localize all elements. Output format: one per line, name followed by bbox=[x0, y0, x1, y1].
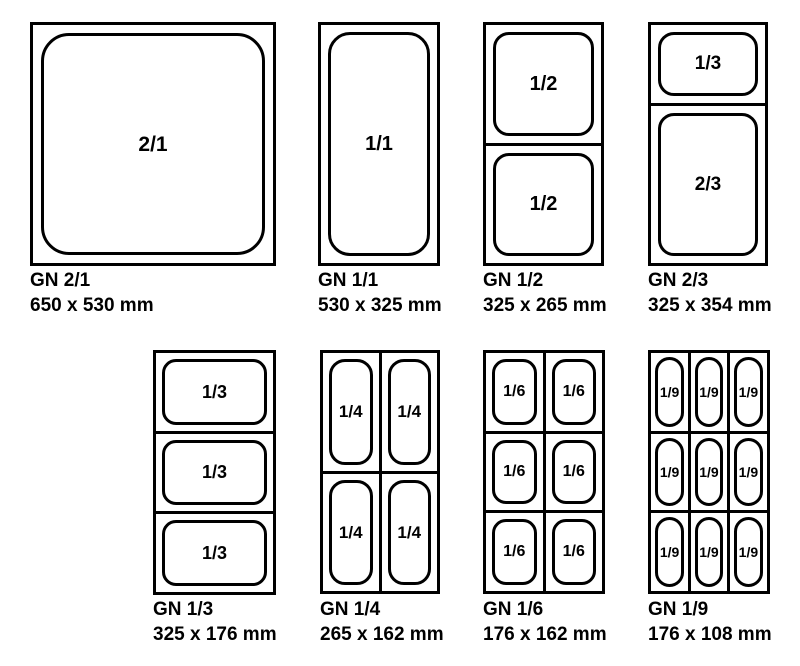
compartment-divider-vertical bbox=[543, 353, 546, 591]
pan-gn-1-4-compartment: 1/4 bbox=[388, 480, 432, 586]
pan-gn-1-3-caption-name: GN 1/3 bbox=[153, 600, 213, 620]
pan-gn-1-1-compartment: 1/1 bbox=[328, 32, 430, 256]
pan-gn-1-6-compartment: 1/6 bbox=[492, 440, 537, 504]
pan-gn-1-9-compartment: 1/9 bbox=[695, 357, 723, 427]
compartment-divider-horizontal bbox=[651, 510, 767, 513]
pan-gn-2-3-outline: 1/32/3 bbox=[648, 22, 768, 266]
compartment-divider-vertical bbox=[727, 353, 730, 591]
compartment-label: 1/2 bbox=[530, 74, 558, 94]
pan-gn-1-9-compartment: 1/9 bbox=[695, 438, 723, 506]
pan-gn-1-4-outline: 1/41/41/41/4 bbox=[320, 350, 440, 594]
compartment-label: 1/9 bbox=[699, 465, 718, 479]
compartment-label: 1/4 bbox=[397, 403, 421, 420]
compartment-label: 1/4 bbox=[339, 524, 363, 541]
pan-gn-1-3-compartment: 1/3 bbox=[162, 440, 267, 505]
pan-gn-1-2-caption-dimensions: 325 x 265 mm bbox=[483, 296, 607, 316]
compartment-label: 1/4 bbox=[339, 403, 363, 420]
compartment-divider-horizontal bbox=[651, 103, 765, 106]
pan-gn-1-4-compartment: 1/4 bbox=[388, 359, 432, 465]
pan-gn-2-3-caption-name: GN 2/3 bbox=[648, 271, 708, 291]
compartment-label: 1/6 bbox=[563, 544, 585, 560]
compartment-label: 1/9 bbox=[739, 465, 758, 479]
pan-gn-1-2-compartment: 1/2 bbox=[493, 32, 594, 136]
compartment-label: 1/6 bbox=[503, 544, 525, 560]
pan-gn-1-3-compartment: 1/3 bbox=[162, 359, 267, 425]
compartment-label: 1/9 bbox=[699, 545, 718, 559]
compartment-label: 1/3 bbox=[202, 463, 227, 481]
pan-gn-1-6-compartment: 1/6 bbox=[552, 359, 597, 425]
compartment-label: 1/9 bbox=[739, 545, 758, 559]
pan-gn-1-1-caption-dimensions: 530 x 325 mm bbox=[318, 296, 442, 316]
pan-gn-2-3-compartment: 2/3 bbox=[658, 113, 758, 256]
compartment-label: 1/9 bbox=[739, 385, 758, 399]
compartment-label: 1/9 bbox=[660, 465, 679, 479]
pan-gn-1-9-compartment: 1/9 bbox=[734, 517, 763, 587]
pan-gn-2-3-compartment: 1/3 bbox=[658, 32, 758, 96]
compartment-label: 1/4 bbox=[397, 524, 421, 541]
pan-gn-1-3-compartment: 1/3 bbox=[162, 520, 267, 586]
compartment-label: 1/3 bbox=[202, 383, 227, 401]
pan-gn-1-6-caption-dimensions: 176 x 162 mm bbox=[483, 625, 607, 645]
compartment-label: 1/9 bbox=[660, 545, 679, 559]
compartment-divider-horizontal bbox=[651, 431, 767, 434]
compartment-divider-vertical bbox=[688, 353, 691, 591]
pan-gn-1-3-caption-dimensions: 325 x 176 mm bbox=[153, 625, 277, 645]
pan-gn-2-1-caption-dimensions: 650 x 530 mm bbox=[30, 296, 154, 316]
pan-gn-1-4-compartment: 1/4 bbox=[329, 480, 373, 586]
pan-gn-1-9-compartment: 1/9 bbox=[655, 438, 684, 506]
pan-gn-2-1-caption-name: GN 2/1 bbox=[30, 271, 90, 291]
compartment-label: 1/9 bbox=[699, 385, 718, 399]
pan-gn-1-9-caption-name: GN 1/9 bbox=[648, 600, 708, 620]
compartment-label: 1/2 bbox=[530, 194, 558, 214]
compartment-divider-horizontal bbox=[486, 143, 601, 146]
compartment-divider-vertical bbox=[379, 353, 382, 591]
pan-gn-2-1-outline: 2/1 bbox=[30, 22, 276, 266]
pan-gn-1-6-caption-name: GN 1/6 bbox=[483, 600, 543, 620]
pan-gn-1-9-compartment: 1/9 bbox=[655, 357, 684, 427]
pan-gn-1-6-compartment: 1/6 bbox=[492, 519, 537, 585]
pan-gn-1-9-compartment: 1/9 bbox=[734, 357, 763, 427]
pan-gn-1-3-outline: 1/31/31/3 bbox=[153, 350, 276, 595]
compartment-label: 2/1 bbox=[138, 134, 167, 155]
pan-gn-1-6-compartment: 1/6 bbox=[492, 359, 537, 425]
compartment-label: 1/6 bbox=[563, 464, 585, 480]
pan-gn-1-9-compartment: 1/9 bbox=[695, 517, 723, 587]
compartment-label: 1/6 bbox=[503, 464, 525, 480]
pan-gn-1-6-compartment: 1/6 bbox=[552, 519, 597, 585]
compartment-label: 1/6 bbox=[563, 384, 585, 400]
pan-gn-1-2-outline: 1/21/2 bbox=[483, 22, 604, 266]
compartment-label: 1/9 bbox=[660, 385, 679, 399]
compartment-label: 1/3 bbox=[695, 54, 721, 73]
pan-gn-1-2-caption-name: GN 1/2 bbox=[483, 271, 543, 291]
pan-gn-1-2-compartment: 1/2 bbox=[493, 153, 594, 257]
pan-gn-1-9-compartment: 1/9 bbox=[734, 438, 763, 506]
compartment-label: 1/6 bbox=[503, 384, 525, 400]
pan-gn-1-4-caption-dimensions: 265 x 162 mm bbox=[320, 625, 444, 645]
pan-gn-1-9-compartment: 1/9 bbox=[655, 517, 684, 587]
compartment-label: 1/1 bbox=[365, 134, 393, 154]
compartment-divider-horizontal bbox=[156, 431, 273, 434]
compartment-divider-horizontal bbox=[156, 511, 273, 514]
pan-gn-1-6-compartment: 1/6 bbox=[552, 440, 597, 504]
pan-gn-2-1-compartment: 2/1 bbox=[41, 33, 265, 255]
pan-gn-1-4-compartment: 1/4 bbox=[329, 359, 373, 465]
pan-gn-1-9-outline: 1/91/91/91/91/91/91/91/91/9 bbox=[648, 350, 770, 594]
compartment-label: 2/3 bbox=[695, 175, 721, 194]
pan-gn-2-3-caption-dimensions: 325 x 354 mm bbox=[648, 296, 772, 316]
pan-gn-1-4-caption-name: GN 1/4 bbox=[320, 600, 380, 620]
pan-gn-1-1-outline: 1/1 bbox=[318, 22, 440, 266]
pan-gn-1-9-caption-dimensions: 176 x 108 mm bbox=[648, 625, 772, 645]
pan-gn-1-6-outline: 1/61/61/61/61/61/6 bbox=[483, 350, 605, 594]
pan-gn-1-1-caption-name: GN 1/1 bbox=[318, 271, 378, 291]
gn-pan-sizes-diagram: 2/1GN 2/1650 x 530 mm1/1GN 1/1530 x 325 … bbox=[0, 0, 800, 666]
compartment-label: 1/3 bbox=[202, 544, 227, 562]
